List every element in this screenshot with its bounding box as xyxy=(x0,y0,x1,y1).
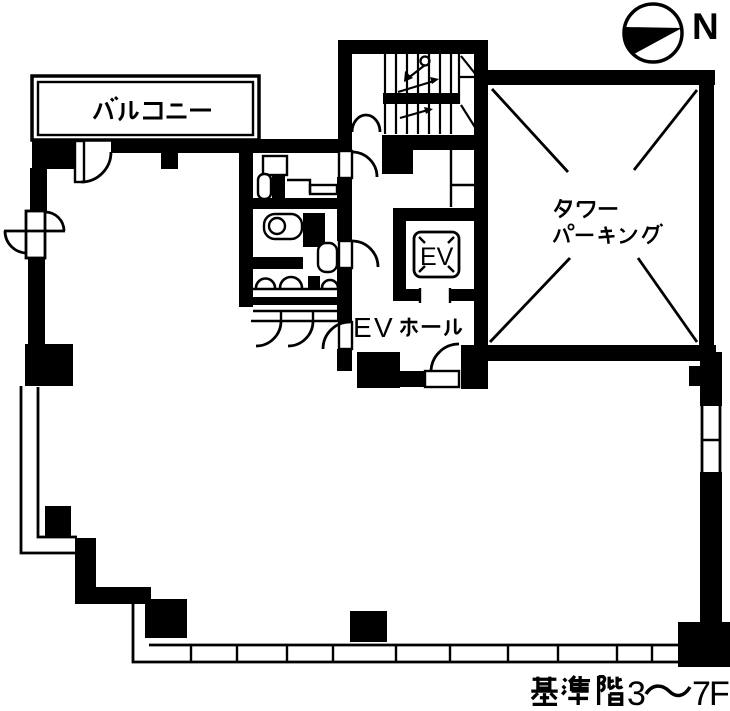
svg-text:F: F xyxy=(709,675,730,711)
svg-text:EV: EV xyxy=(420,243,454,271)
svg-text:3: 3 xyxy=(627,675,646,711)
svg-text:V: V xyxy=(374,312,393,343)
svg-text:N: N xyxy=(692,6,719,47)
svg-text:E: E xyxy=(353,312,372,343)
